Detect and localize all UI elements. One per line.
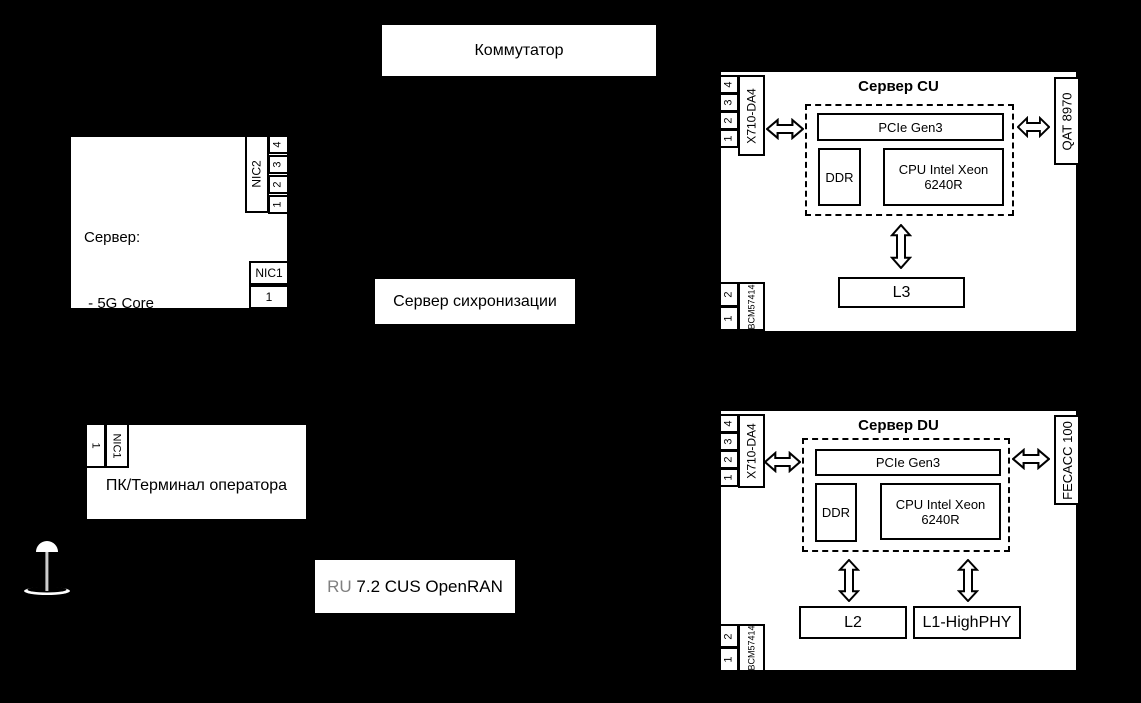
core-server-line2: - 5G Core bbox=[84, 293, 233, 315]
du-x710-label: X710-DA4 bbox=[745, 423, 759, 478]
du-bcm-port-2: 2 bbox=[719, 624, 739, 648]
du-x710-nic-box: X710-DA4 bbox=[738, 414, 765, 488]
core-nic2-port-3: 3 bbox=[268, 155, 289, 174]
ru-node-prefix: RU bbox=[327, 577, 352, 596]
cu-pcie-box: PCIe Gen3 bbox=[817, 113, 1004, 141]
cu-nic-pcie-arrow-icon bbox=[766, 118, 804, 140]
core-server-line3: - Генератор трафика bbox=[84, 359, 233, 381]
core-server-node: Сервер: - 5G Core - Генератор трафика NI… bbox=[69, 135, 289, 310]
du-x710-port-3: 3 bbox=[719, 432, 739, 451]
du-bcm-nic-box: BCM57414 bbox=[738, 624, 765, 672]
du-bcm-label: BCM57414 bbox=[747, 625, 757, 670]
cu-pcie-qat-arrow-icon bbox=[1017, 116, 1050, 138]
du-fecacc-label: FECACC 100 bbox=[1060, 421, 1075, 500]
cu-x710-port-1: 1 bbox=[719, 129, 739, 148]
cu-x710-port-2: 2 bbox=[719, 111, 739, 130]
du-x710-port-1: 1 bbox=[719, 468, 739, 487]
cu-l3-box: L3 bbox=[838, 277, 965, 308]
du-pcie-fec-arrow-icon bbox=[1012, 448, 1050, 470]
du-cpu-l1-arrow-icon bbox=[957, 559, 979, 602]
sync-server-node: Сервер сихронизации bbox=[373, 277, 577, 326]
du-pcie-box: PCIe Gen3 bbox=[815, 449, 1001, 476]
pc-nic1-label-box: NIC1 bbox=[105, 423, 129, 468]
core-server-text: Сервер: - 5G Core - Генератор трафика bbox=[84, 183, 233, 425]
cu-bcm-nic-box: BCM57414 bbox=[738, 282, 765, 331]
core-nic2-label-box: NIC2 bbox=[245, 135, 269, 213]
cu-x710-nic-box: X710-DA4 bbox=[738, 75, 765, 156]
sync-server-label: Сервер сихронизации bbox=[393, 293, 557, 311]
du-x710-port-4: 4 bbox=[719, 414, 739, 433]
diagram-canvas: Коммутатор Сервер: - 5G Core - Генератор… bbox=[0, 0, 1141, 703]
du-server-title: Сервер DU bbox=[721, 417, 1076, 434]
core-nic1-label: NIC1 bbox=[255, 266, 282, 280]
cu-server-title: Сервер CU bbox=[721, 78, 1076, 95]
cu-bcm-label: BCM57414 bbox=[747, 284, 757, 329]
du-l1-highphy-box: L1-HighPHY bbox=[913, 606, 1021, 639]
operator-pc-node: ПК/Терминал оператора 1 NIC1 bbox=[85, 423, 308, 521]
cu-server-node: Сервер CU 4 3 2 1 X710-DA4 PCIe Gen3 DDR… bbox=[719, 70, 1078, 333]
du-l2-box: L2 bbox=[799, 606, 907, 639]
cu-x710-port-3: 3 bbox=[719, 93, 739, 112]
cu-bcm-port-1: 1 bbox=[719, 306, 739, 331]
du-cpu-box: CPU Intel Xeon 6240R bbox=[880, 483, 1001, 540]
cu-x710-label: X710-DA4 bbox=[745, 88, 759, 143]
core-nic1-port-1: 1 bbox=[249, 285, 289, 309]
core-nic2-port-1: 1 bbox=[268, 195, 289, 214]
ru-node-label: 7.2 CUS OpenRAN bbox=[352, 577, 503, 596]
du-x710-port-2: 2 bbox=[719, 450, 739, 469]
pc-nic1-port-1: 1 bbox=[85, 423, 106, 468]
du-cpu-l2-arrow-icon bbox=[838, 559, 860, 602]
pc-nic1-label: NIC1 bbox=[111, 433, 123, 458]
core-nic2-label: NIC2 bbox=[250, 160, 264, 187]
core-nic2-port-2: 2 bbox=[268, 175, 289, 194]
antenna-icon bbox=[23, 532, 71, 596]
cu-ddr-box: DDR bbox=[818, 148, 861, 206]
core-server-line1: Сервер: bbox=[84, 227, 233, 249]
cu-qat-accel-box: QAT 8970 bbox=[1054, 77, 1080, 165]
du-bcm-port-1: 1 bbox=[719, 647, 739, 672]
switch-node: Коммутатор bbox=[380, 23, 658, 78]
cu-bcm-port-2: 2 bbox=[719, 282, 739, 307]
du-ddr-box: DDR bbox=[815, 483, 857, 542]
switch-label: Коммутатор bbox=[474, 42, 563, 60]
cu-cpu-box: CPU Intel Xeon 6240R bbox=[883, 148, 1004, 206]
core-nic1-label-box: NIC1 bbox=[249, 261, 289, 285]
du-nic-pcie-arrow-icon bbox=[764, 451, 801, 473]
du-server-node: Сервер DU 4 3 2 1 X710-DA4 PCIe Gen3 DDR… bbox=[719, 409, 1078, 672]
du-fecacc-accel-box: FECACC 100 bbox=[1054, 415, 1080, 505]
cu-qat-label: QAT 8970 bbox=[1060, 92, 1075, 150]
ru-node: RU 7.2 CUS OpenRAN bbox=[313, 558, 517, 615]
operator-pc-label: ПК/Терминал оператора bbox=[87, 477, 306, 495]
cu-cpu-l3-arrow-icon bbox=[890, 224, 912, 269]
core-nic2-port-4: 4 bbox=[268, 135, 289, 154]
cu-x710-port-4: 4 bbox=[719, 75, 739, 94]
